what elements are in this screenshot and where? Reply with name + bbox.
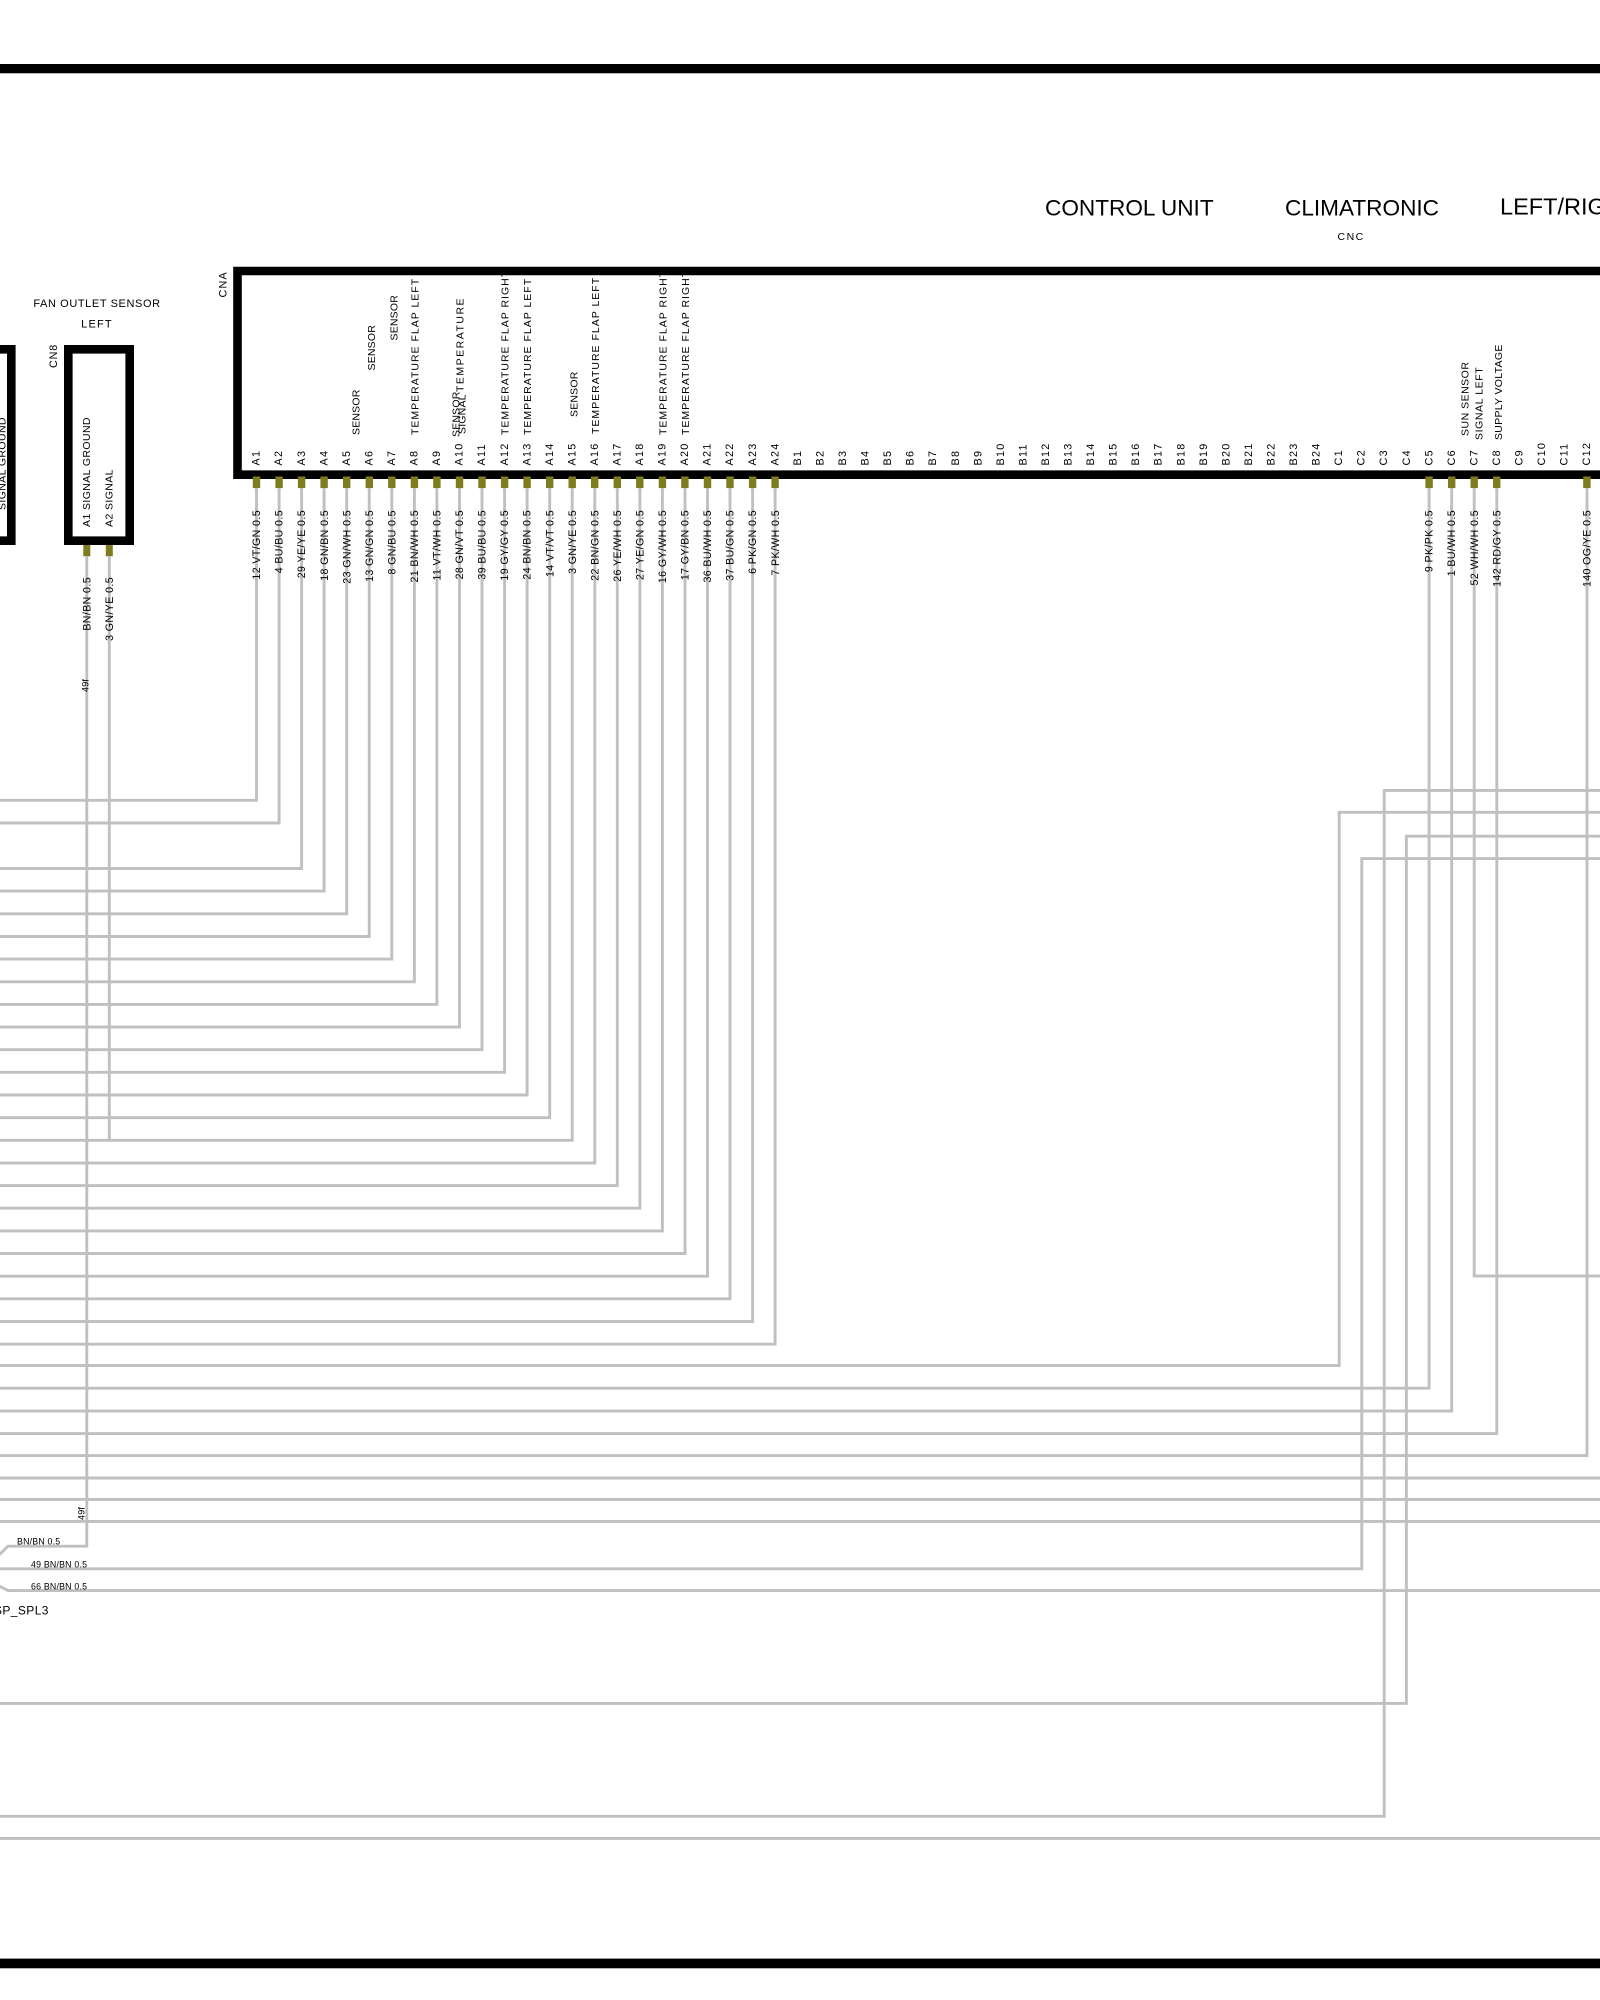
svg-text:C9: C9 [1514, 449, 1526, 465]
svg-text:23 GN/WH 0.5: 23 GN/WH 0.5 [341, 510, 353, 584]
svg-text:B6: B6 [905, 450, 917, 466]
svg-text:TEMPERATURE FLAP RIGHT: TEMPERATURE FLAP RIGHT [500, 270, 512, 435]
svg-text:CNC: CNC [1338, 231, 1365, 243]
svg-text:C10: C10 [1536, 442, 1548, 466]
svg-text:B15: B15 [1108, 442, 1120, 465]
svg-text:B11: B11 [1017, 443, 1029, 465]
svg-text:A11: A11 [476, 443, 488, 465]
svg-text:37 BU/GN 0.5: 37 BU/GN 0.5 [725, 510, 737, 581]
svg-text:C8: C8 [1491, 449, 1503, 465]
svg-text:A23: A23 [747, 442, 759, 465]
svg-text:B14: B14 [1085, 442, 1097, 465]
svg-text:TEMPERATURE FLAP RIGHT: TEMPERATURE FLAP RIGHT [657, 270, 669, 435]
svg-text:19 GY/GY 0.5: 19 GY/GY 0.5 [499, 510, 511, 581]
svg-text:A1: A1 [81, 513, 93, 527]
svg-text:142 RD/GY 0.5: 142 RD/GY 0.5 [1491, 510, 1503, 587]
svg-text:A15: A15 [566, 442, 578, 465]
svg-text:SUPPLY VOLTAGE: SUPPLY VOLTAGE [1493, 344, 1505, 440]
svg-text:C5: C5 [1423, 449, 1435, 465]
svg-text:B7: B7 [927, 450, 939, 466]
svg-text:A13: A13 [521, 442, 533, 465]
svg-text:BN/BN 0.5: BN/BN 0.5 [17, 1537, 60, 1547]
svg-text:A8: A8 [409, 450, 421, 466]
svg-text:1 BU/WH 0.5: 1 BU/WH 0.5 [1446, 510, 1458, 576]
svg-text:B17: B17 [1153, 442, 1165, 465]
svg-text:BN/BN 0.5: BN/BN 0.5 [81, 577, 93, 631]
svg-text:A21: A21 [702, 442, 714, 465]
svg-text:CN8: CN8 [48, 344, 60, 368]
svg-text:C1: C1 [1333, 449, 1345, 465]
svg-text:B5: B5 [882, 450, 894, 466]
svg-text:LEFT/RIGHT: LEFT/RIGHT [1500, 194, 1600, 220]
svg-text:B13: B13 [1063, 442, 1075, 465]
svg-text:21 BN/WH 0.5: 21 BN/WH 0.5 [409, 510, 421, 583]
svg-text:A2: A2 [104, 513, 116, 527]
svg-text:A1: A1 [251, 450, 263, 466]
svg-text:A18: A18 [634, 442, 646, 465]
svg-text:SIGNAL GROUND: SIGNAL GROUND [81, 417, 93, 510]
svg-text:49 BN/BN 0.5: 49 BN/BN 0.5 [31, 1560, 87, 1570]
svg-text:16 GY/WH 0.5: 16 GY/WH 0.5 [657, 510, 669, 583]
svg-text:SENSOR: SENSOR [366, 325, 378, 371]
svg-text:26 YE/WH 0.5: 26 YE/WH 0.5 [612, 510, 624, 582]
svg-text:SIGNAL: SIGNAL [104, 469, 116, 510]
svg-text:TEMPERATURE FLAP LEFT: TEMPERATURE FLAP LEFT [590, 277, 602, 434]
svg-text:C6: C6 [1446, 449, 1458, 465]
svg-text:C3: C3 [1378, 449, 1390, 465]
svg-text:TEMPERATURE: TEMPERATURE [454, 297, 466, 392]
svg-text:B8: B8 [950, 450, 962, 466]
svg-text:36 BU/WH 0.5: 36 BU/WH 0.5 [702, 510, 714, 583]
svg-text:A20: A20 [679, 442, 691, 465]
svg-text:52 WH/WH 0.5: 52 WH/WH 0.5 [1469, 510, 1481, 585]
svg-text:A16: A16 [589, 442, 601, 465]
svg-text:SUN SENSOR: SUN SENSOR [1460, 362, 1472, 436]
svg-text:49f: 49f [77, 1507, 87, 1520]
svg-text:TEMPERATURE FLAP LEFT: TEMPERATURE FLAP LEFT [409, 278, 421, 435]
svg-text:66 BN/BN 0.5: 66 BN/BN 0.5 [31, 1582, 87, 1592]
svg-text:B1: B1 [792, 450, 804, 466]
svg-text:TEMPERATURE FLAP RIGHT: TEMPERATURE FLAP RIGHT [680, 270, 692, 435]
svg-text:CONTROL UNIT: CONTROL UNIT [1045, 196, 1214, 221]
svg-text:B18: B18 [1175, 442, 1187, 465]
svg-text:B24: B24 [1311, 442, 1323, 465]
svg-text:C4: C4 [1401, 449, 1413, 465]
svg-text:24 BN/BN 0.5: 24 BN/BN 0.5 [522, 510, 534, 580]
svg-text:7 PK/WH 0.5: 7 PK/WH 0.5 [770, 510, 782, 576]
svg-text:B12: B12 [1040, 442, 1052, 465]
svg-text:11 VT/WH 0.5: 11 VT/WH 0.5 [432, 510, 444, 581]
svg-text:C11: C11 [1559, 443, 1571, 466]
svg-text:A24: A24 [769, 442, 781, 465]
svg-text:22 BN/GN 0.5: 22 BN/GN 0.5 [589, 510, 601, 581]
svg-text:B20: B20 [1220, 442, 1232, 465]
svg-text:B23: B23 [1288, 442, 1300, 465]
svg-text:4 BU/BU 0.5: 4 BU/BU 0.5 [274, 510, 286, 573]
svg-text:B21: B21 [1243, 442, 1255, 465]
svg-text:C12: C12 [1581, 442, 1593, 466]
svg-text:A5: A5 [341, 450, 353, 466]
svg-text:A12: A12 [499, 442, 511, 465]
svg-text:SP_SPL3: SP_SPL3 [0, 1604, 49, 1618]
svg-text:C2: C2 [1356, 449, 1368, 465]
svg-text:A6: A6 [363, 450, 375, 466]
svg-text:14 VT/VT 0.5: 14 VT/VT 0.5 [544, 510, 556, 577]
svg-text:A14: A14 [544, 442, 556, 465]
svg-text:A10: A10 [454, 442, 466, 465]
svg-text:9 PK/PK 0.5: 9 PK/PK 0.5 [1424, 510, 1436, 572]
svg-text:SENSOR: SENSOR [388, 295, 400, 341]
svg-text:SENSOR: SENSOR [351, 389, 363, 435]
svg-text:17 GY/BN 0.5: 17 GY/BN 0.5 [680, 510, 692, 580]
svg-text:39 BU/BU 0.5: 39 BU/BU 0.5 [477, 510, 489, 580]
svg-text:3 GN/YE 0.5: 3 GN/YE 0.5 [104, 577, 116, 641]
svg-text:LEFT: LEFT [81, 319, 113, 331]
svg-text:A19: A19 [657, 442, 669, 465]
svg-text:27 YE/GN 0.5: 27 YE/GN 0.5 [635, 510, 647, 580]
svg-text:12 VT/GN 0.5: 12 VT/GN 0.5 [251, 510, 263, 580]
svg-text:B10: B10 [995, 442, 1007, 465]
svg-text:B16: B16 [1130, 442, 1142, 465]
svg-text:A9: A9 [431, 450, 443, 466]
svg-text:A7: A7 [386, 450, 398, 466]
svg-text:SIGNAL: SIGNAL [457, 394, 469, 434]
svg-text:A3: A3 [296, 450, 308, 466]
svg-text:FAN OUTLET SENSOR: FAN OUTLET SENSOR [33, 298, 160, 310]
svg-text:SIGNAL GROUND: SIGNAL GROUND [0, 417, 9, 510]
svg-text:6 PK/GN 0.5: 6 PK/GN 0.5 [747, 510, 759, 574]
svg-text:C7: C7 [1468, 449, 1480, 465]
svg-text:TEMPERATURE FLAP LEFT: TEMPERATURE FLAP LEFT [522, 278, 534, 435]
svg-text:B22: B22 [1266, 442, 1278, 465]
svg-text:8 GN/BU 0.5: 8 GN/BU 0.5 [386, 510, 398, 574]
svg-text:49f: 49f [80, 679, 90, 692]
svg-text:18 GN/BN 0.5: 18 GN/BN 0.5 [319, 510, 331, 581]
svg-text:140 OG/YE 0.5: 140 OG/YE 0.5 [1582, 510, 1594, 587]
svg-text:3 GN/YE 0.5: 3 GN/YE 0.5 [567, 510, 579, 574]
svg-text:B19: B19 [1198, 442, 1210, 465]
svg-text:SIGNAL LEFT: SIGNAL LEFT [1474, 367, 1486, 440]
svg-text:A2: A2 [273, 450, 285, 466]
svg-text:B3: B3 [837, 450, 849, 466]
svg-text:B2: B2 [815, 450, 827, 466]
svg-text:CLIMATRONIC: CLIMATRONIC [1285, 196, 1439, 221]
svg-text:CNA: CNA [218, 271, 230, 297]
svg-text:28 GN/VT 0.5: 28 GN/VT 0.5 [454, 510, 466, 579]
svg-text:B4: B4 [860, 450, 872, 466]
svg-text:A17: A17 [612, 442, 624, 465]
svg-text:29 YE/YE 0.5: 29 YE/YE 0.5 [296, 510, 308, 578]
svg-text:A22: A22 [724, 442, 736, 465]
svg-text:13 GN/GN 0.5: 13 GN/GN 0.5 [364, 510, 376, 582]
svg-text:SENSOR: SENSOR [569, 371, 581, 417]
svg-text:B9: B9 [972, 450, 984, 466]
svg-text:A4: A4 [318, 450, 330, 466]
